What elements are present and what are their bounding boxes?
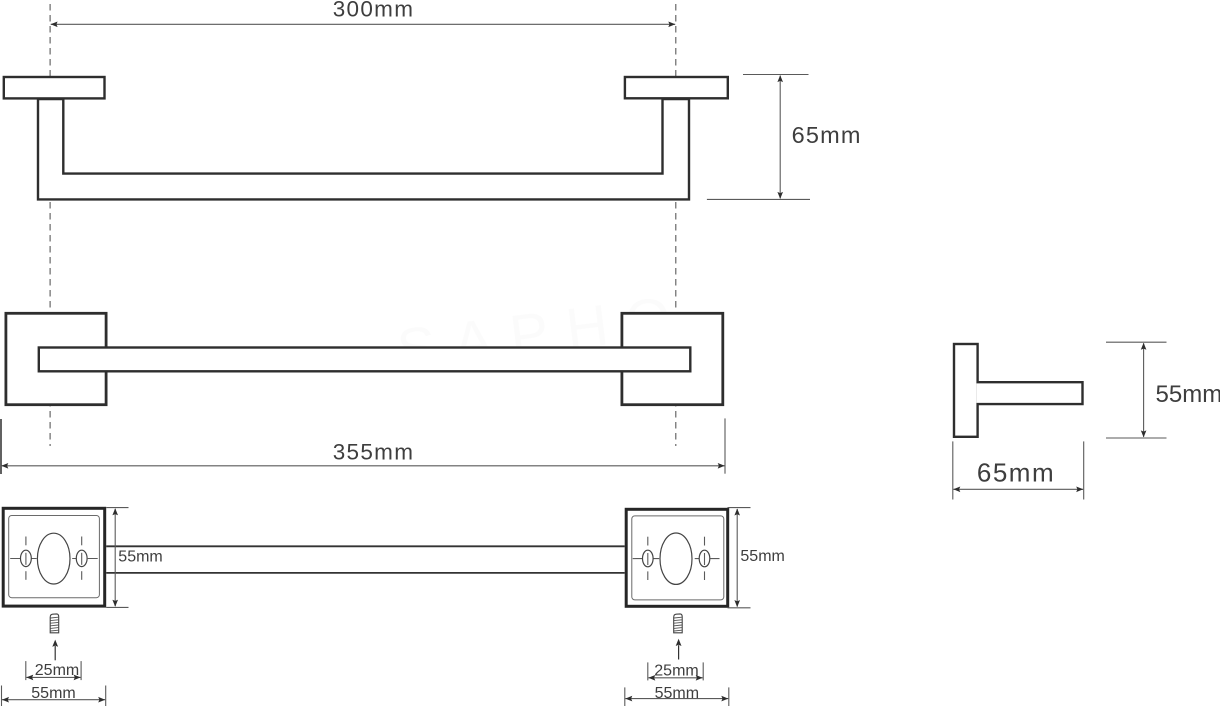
svg-text:55mm: 55mm [118,548,162,565]
svg-text:355mm: 355mm [333,440,415,465]
svg-text:55mm: 55mm [31,685,75,702]
svg-text:25mm: 25mm [654,663,698,680]
svg-text:65mm: 65mm [792,122,862,148]
svg-text:65mm: 65mm [977,458,1055,488]
svg-text:55mm: 55mm [740,548,784,565]
svg-text:55mm: 55mm [1156,381,1220,408]
svg-text:55mm: 55mm [655,685,699,702]
svg-text:300mm: 300mm [333,0,415,21]
svg-text:25mm: 25mm [35,662,79,679]
